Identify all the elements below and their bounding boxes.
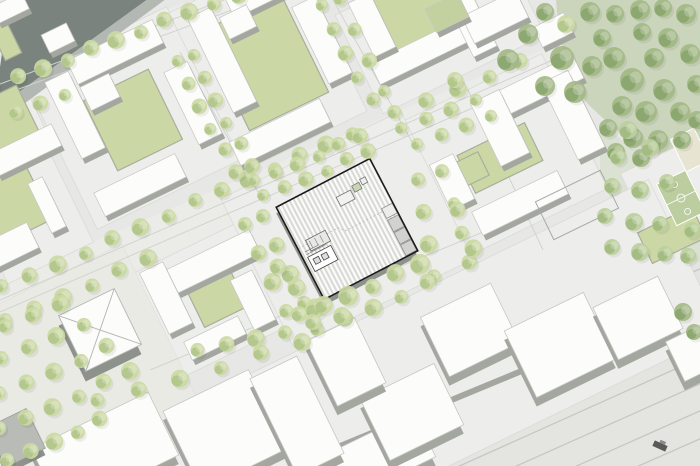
tree-canopy-highlight: [626, 124, 635, 133]
tree-canopy-highlight: [296, 159, 304, 167]
tree-canopy-highlight: [371, 281, 379, 289]
tree-canopy-highlight: [418, 257, 428, 267]
tree-canopy-highlight: [612, 50, 623, 61]
tree-canopy-highlight: [400, 292, 407, 299]
tree-canopy-highlight: [690, 224, 698, 232]
tree-canopy-highlight: [506, 52, 517, 63]
tree-canopy-highlight: [681, 306, 690, 315]
tree-canopy-highlight: [298, 149, 306, 157]
tree-canopy-highlight: [666, 31, 676, 41]
tree-canopy-highlight: [76, 427, 83, 434]
tree-canopy-highlight: [4, 321, 11, 328]
tree-canopy-highlight: [253, 176, 259, 182]
tree-canopy-highlight: [289, 268, 298, 277]
tree-canopy-highlight: [243, 219, 250, 226]
tree-canopy-highlight: [262, 191, 268, 197]
tree-canopy-highlight: [29, 445, 37, 453]
tree-canopy-highlight: [644, 104, 655, 115]
tree-canopy-highlight: [440, 130, 447, 137]
tree-canopy-highlight: [620, 99, 630, 109]
tree-canopy-highlight: [167, 211, 174, 218]
tree-canopy-highlight: [84, 248, 91, 255]
tree-canopy-highlight: [128, 365, 137, 374]
tree-canopy-highlight: [630, 71, 642, 83]
tree-canopy-highlight: [31, 309, 39, 317]
tree-canopy-highlight: [54, 330, 63, 339]
tree-canopy-highlight: [187, 5, 196, 14]
tree-canopy-highlight: [648, 142, 657, 151]
tree-canopy-highlight: [424, 95, 432, 103]
site-plan-stage: Architectural site plan — aerial view of…: [0, 0, 700, 466]
tree-canopy-highlight: [638, 3, 648, 13]
tree-canopy-highlight: [588, 5, 598, 15]
tree-canopy-highlight: [27, 341, 35, 349]
tree-canopy-highlight: [225, 119, 231, 125]
tree-canopy-highlight: [488, 72, 495, 79]
tree-canopy-highlight: [178, 372, 187, 381]
tree-canopy-highlight: [353, 25, 360, 32]
tree-canopy-highlight: [203, 73, 210, 80]
tree-canopy-highlight: [573, 84, 584, 95]
tree-canopy-highlight: [311, 316, 319, 324]
tree-canopy-highlight: [194, 195, 201, 202]
tree-canopy-highlight: [198, 101, 206, 109]
tree-canopy-highlight: [284, 327, 291, 334]
tree-canopy-highlight: [449, 104, 457, 112]
tree-canopy-highlight: [117, 264, 125, 272]
tree-canopy-highlight: [274, 167, 281, 174]
tree-canopy-highlight: [96, 395, 103, 402]
tree-canopy-highlight: [209, 125, 215, 131]
tree-canopy-highlight: [77, 391, 84, 398]
tree-canopy-highlight: [6, 455, 13, 462]
tree-canopy-highlight: [393, 107, 400, 114]
tree-canopy-highlight: [322, 298, 331, 307]
tree-canopy-highlight: [261, 211, 268, 218]
tree-canopy-highlight: [610, 180, 618, 188]
tree-canopy-highlight: [366, 145, 374, 153]
tree-canopy-highlight: [665, 176, 673, 184]
tree-canopy-highlight: [606, 122, 615, 131]
tree-canopy-highlight: [254, 332, 263, 341]
tree-canopy-highlight: [543, 79, 553, 89]
tree-canopy-highlight: [240, 138, 247, 145]
tree-canopy-highlight: [105, 340, 113, 348]
tree-canopy-highlight: [472, 242, 481, 251]
tree-canopy-highlight: [0, 281, 7, 288]
tree-canopy-highlight: [196, 345, 203, 352]
tree-canopy-highlight: [56, 258, 65, 267]
tree-canopy-highlight: [332, 24, 339, 31]
tree-canopy-highlight: [275, 239, 283, 247]
tree-canopy-highlight: [139, 27, 146, 34]
tree-canopy-highlight: [271, 276, 280, 285]
tree-canopy-highlight: [416, 140, 422, 146]
tree-canopy-highlight: [616, 151, 624, 159]
tree-canopy-highlight: [427, 238, 436, 247]
tree-canopy-highlight: [220, 363, 227, 370]
tree-canopy-highlight: [346, 289, 356, 299]
tree-canopy-highlight: [102, 376, 110, 384]
tree-canopy-highlight: [526, 27, 536, 37]
tree-canopy-highlight: [304, 174, 312, 182]
tree-canopy-highlight: [662, 82, 673, 93]
tree-canopy-highlight: [383, 87, 389, 93]
tree-canopy-highlight: [90, 42, 98, 50]
tree-canopy-highlight: [187, 79, 194, 86]
tree-canopy-highlight: [39, 98, 47, 106]
tree-canopy-highlight: [52, 365, 61, 374]
tree-canopy-highlight: [177, 57, 183, 63]
tree-canopy-highlight: [543, 6, 552, 15]
tree-canopy-highlight: [368, 55, 376, 63]
tree-canopy-highlight: [356, 73, 362, 79]
tree-canopy-highlight: [41, 62, 50, 71]
tree-canopy-highlight: [394, 267, 403, 276]
tree-canopy-highlight: [111, 232, 119, 240]
tree-canopy-highlight: [684, 7, 694, 17]
tree-canopy-highlight: [560, 49, 572, 61]
tree-canopy-highlight: [663, 248, 671, 256]
tree-canopy-highlight: [162, 14, 170, 22]
tree-canopy-highlight: [460, 228, 467, 235]
tree-canopy-highlight: [632, 216, 641, 225]
tree-canopy-highlight: [98, 413, 106, 421]
tree-canopy-highlight: [139, 221, 148, 230]
tree-canopy-highlight: [490, 111, 496, 117]
tree-canopy-highlight: [276, 261, 284, 269]
tree-canopy-highlight: [225, 338, 233, 346]
tree-canopy-highlight: [456, 204, 464, 212]
site-plan-svg: Architectural site plan — aerial view of…: [0, 0, 700, 466]
tree-canopy-highlight: [321, 1, 327, 7]
tree-canopy-highlight: [340, 310, 349, 319]
tree-canopy-highlight: [24, 412, 32, 420]
tree-canopy-highlight: [422, 206, 430, 214]
tree-canopy-highlight: [283, 182, 290, 189]
tree-canopy-highlight: [345, 154, 352, 161]
tree-canopy-highlight: [680, 134, 689, 143]
tree-canopy-highlight: [220, 184, 228, 192]
tree-canopy-highlight: [590, 59, 600, 69]
tree-canopy-highlight: [224, 144, 231, 151]
tree-canopy-highlight: [613, 8, 622, 17]
tree-canopy-highlight: [658, 218, 666, 226]
tree-canopy-highlight: [610, 241, 618, 249]
tree-canopy-highlight: [686, 250, 694, 258]
tree-canopy-highlight: [318, 152, 324, 158]
tree-canopy-highlight: [603, 210, 611, 218]
tree-canopy-highlight: [475, 95, 481, 101]
tree-canopy-highlight: [137, 384, 145, 392]
tree-canopy-highlight: [64, 91, 70, 97]
tree-canopy-highlight: [400, 124, 406, 130]
tree-canopy-highlight: [52, 435, 61, 444]
tree-canopy-highlight: [638, 184, 647, 193]
tree-canopy-highlight: [234, 166, 242, 174]
tree-canopy-highlight: [25, 377, 33, 385]
tree-canopy-highlight: [67, 55, 74, 62]
tree-canopy-highlight: [17, 70, 25, 78]
tree-canopy-highlight: [193, 51, 199, 57]
tree-canopy-highlight: [300, 336, 309, 345]
tree-canopy-highlight: [441, 166, 448, 173]
tree-canopy-highlight: [678, 105, 688, 115]
tree-canopy-highlight: [640, 26, 649, 35]
tree-canopy-highlight: [28, 269, 36, 277]
tree-canopy-highlight: [425, 114, 432, 121]
tree-canopy-highlight: [417, 175, 424, 182]
tree-canopy-highlight: [250, 160, 258, 168]
tree-canopy-highlight: [465, 120, 473, 128]
tree-canopy-highlight: [50, 401, 59, 410]
tree-canopy-highlight: [344, 48, 352, 56]
tree-canopy-highlight: [146, 252, 155, 261]
tree-canopy-highlight: [453, 74, 461, 82]
tree-canopy-highlight: [358, 130, 366, 138]
tree-canopy-highlight: [259, 347, 267, 355]
tree-canopy-highlight: [564, 18, 573, 27]
tree-canopy-highlight: [652, 51, 662, 61]
tree-canopy-highlight: [600, 32, 609, 41]
tree-canopy-highlight: [82, 320, 89, 327]
tree-canopy-highlight: [257, 247, 265, 255]
tree-canopy-highlight: [326, 167, 332, 173]
tree-canopy-highlight: [372, 94, 379, 101]
tree-canopy-highlight: [114, 34, 123, 43]
tree-canopy-highlight: [59, 297, 68, 306]
tree-canopy-highlight: [298, 308, 306, 316]
tree-canopy-highlight: [426, 276, 434, 284]
tree-canopy-highlight: [371, 301, 380, 310]
tree-canopy-highlight: [80, 356, 87, 363]
tree-canopy-highlight: [688, 47, 698, 57]
tree-canopy-highlight: [295, 281, 304, 290]
tree-canopy-highlight: [337, 139, 344, 146]
tree-canopy-highlight: [656, 133, 666, 143]
tree-canopy-highlight: [285, 306, 292, 313]
tree-canopy-highlight: [661, 2, 670, 11]
tree-canopy-highlight: [91, 280, 98, 287]
tree-canopy-highlight: [0, 353, 7, 360]
tree-canopy-highlight: [214, 95, 222, 103]
tree-canopy-highlight: [14, 107, 21, 114]
tree-canopy-highlight: [638, 246, 647, 255]
